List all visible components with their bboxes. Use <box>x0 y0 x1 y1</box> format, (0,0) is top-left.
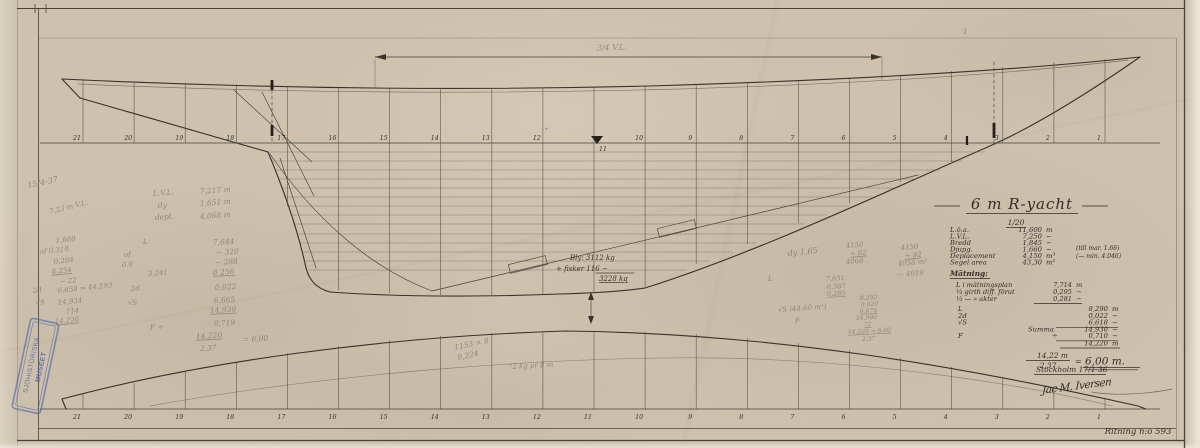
pencil-note: 7,644 <box>213 237 235 247</box>
station-number-top: 16 <box>328 135 336 142</box>
pencil-note: depl. <box>155 212 174 222</box>
keel-section-box <box>657 220 696 238</box>
spec-note: (till mar. 1.66) <box>1076 245 1120 252</box>
station-number-top: 14 <box>431 135 439 142</box>
stem-profile-line <box>645 57 1140 288</box>
station-number-bottom: 1 <box>1097 414 1101 421</box>
pencil-note: 0,022 <box>215 282 237 292</box>
counter-underside <box>80 98 268 152</box>
keel-weight-note-line: 3228 kg <box>599 275 628 283</box>
pencil-note: + <box>544 126 549 133</box>
formula-numerator: 14,22 m <box>1037 351 1068 360</box>
dimension-arrow-left <box>375 54 386 60</box>
pencil-note: 8,254 <box>51 266 72 276</box>
pencil-note: 1,651 m <box>200 197 232 208</box>
station-number-top: 8 <box>739 135 743 142</box>
plan-transom <box>62 399 66 409</box>
transom-edge <box>62 79 80 98</box>
pencil-note: — 4019 <box>896 269 924 279</box>
title-row-value: 43,30 <box>1022 259 1043 267</box>
pencil-note: F <box>794 317 802 325</box>
pencil-note: √S <box>128 298 138 307</box>
station-number-bottom: 10 <box>635 414 643 421</box>
perpendicular-tick <box>271 80 274 90</box>
pencil-note: 2,37 <box>861 335 876 343</box>
pencil-note: 4068 <box>844 256 864 266</box>
spec-note: (— min. 4.046) <box>1076 253 1122 260</box>
matning-heading: Mätning: <box>949 269 988 278</box>
pencil-note: 1,660 <box>55 235 76 245</box>
signature-flourish <box>1092 389 1172 394</box>
pencil-note: − 288 <box>215 257 239 267</box>
station-number-bottom: 5 <box>893 414 897 421</box>
title-block: 6 m R-yacht 1/20 L.ö.a.11,600mL.V.L.7,25… <box>934 195 1172 397</box>
pencil-note: 2d <box>130 284 141 293</box>
pencil-note: 8 256 <box>213 267 235 277</box>
pencil-note: 14,934 <box>57 296 82 307</box>
draft-arrow-head-down <box>588 316 594 324</box>
title-row-unit: m² <box>1046 259 1055 267</box>
counter-diagonal <box>262 92 314 196</box>
place-date: Stockholm 17/1-36 <box>1036 365 1108 374</box>
station-number-bottom: 14 <box>431 414 439 421</box>
title-block-rows: L.ö.a.11,600mL.V.L.7,250−Bredd1,845−Djup… <box>949 226 1140 370</box>
pencil-note: dy <box>158 200 168 210</box>
stamp-border-outer <box>12 318 59 414</box>
station-number-top: 1 <box>1097 135 1101 142</box>
station-number-bottom: 7 <box>790 414 794 421</box>
station-number-top: 11 <box>599 146 607 153</box>
perpendicular-tick <box>271 125 274 136</box>
station-number-top: 13 <box>482 135 490 142</box>
pencil-note: 4,068 m <box>199 210 232 221</box>
pencil-note: 0.0 <box>122 260 134 269</box>
pencil-note: L.V.L. <box>152 188 175 199</box>
station-number-top: 9 <box>688 135 692 142</box>
station-number-top: 19 <box>175 135 183 142</box>
keel-weight-note-line: + fisker 116 − <box>556 265 608 273</box>
pencil-note: 0,285 <box>827 289 846 298</box>
pencil-note: 2,37 <box>199 343 217 353</box>
keel-weight-note: Bly: 3112 kg+ fisker 116 −3228 kg <box>556 254 628 283</box>
keel-section-box <box>508 256 547 274</box>
station-number-bottom: 16 <box>328 414 336 421</box>
pencil-note: 14,220 <box>196 331 223 341</box>
station-number-top: 2 <box>1045 135 1050 142</box>
station-number-bottom: 13 <box>482 414 490 421</box>
station-number-top: 15 <box>380 135 388 142</box>
station-number-top: 12 <box>533 135 541 142</box>
pencil-note: 7,217 m <box>200 185 232 196</box>
pencil-note: 14,939 <box>210 305 237 315</box>
drawing-number: Ritning n:o 593 <box>1104 427 1172 437</box>
station-number-top: 7 <box>790 135 794 142</box>
ballast-seam-line <box>432 175 918 291</box>
pencil-note: √S <box>35 298 45 307</box>
station-number-bottom: 11 <box>584 414 592 421</box>
drawing-sheet: 3/4 V.L. 2121202019191818171716161515141… <box>0 0 1200 448</box>
station-number-bottom: 8 <box>739 414 743 421</box>
pencil-note: 0,284 <box>53 256 74 266</box>
station-number-bottom: 18 <box>226 414 234 421</box>
dimension-arrow-right <box>871 54 882 60</box>
pencil-note: 3,241 <box>148 269 169 278</box>
sheer-line <box>62 57 1140 88</box>
plan-deck-outline <box>62 331 1146 409</box>
pencil-note: = 6,00 <box>243 334 269 344</box>
station-number-top: 5 <box>893 135 897 142</box>
station-number-bottom: 6 <box>841 414 845 421</box>
archive-stamp: SJÖHISTORISKA MUSEET <box>12 318 59 414</box>
pencil-note: L <box>142 238 149 246</box>
pencil-note: F ÷ <box>149 322 164 332</box>
pencil-note: of. <box>124 250 133 259</box>
station-number-bottom: 3 <box>995 414 999 421</box>
station-number-bottom: 12 <box>533 414 541 421</box>
pencil-note: 0,719 <box>214 318 236 328</box>
sum-row-label: √S <box>958 319 967 327</box>
pencil-note: 714 <box>65 307 79 316</box>
station-number-top: 6 <box>841 135 845 142</box>
sum-row-label: F <box>957 332 963 340</box>
lines-plan-svg: 3/4 V.L. 2121202019191818171716161515141… <box>0 0 1200 448</box>
station-number-top: 17 <box>277 135 285 142</box>
station-number-bottom: 21 <box>72 414 81 421</box>
drawing-title: 6 m R-yacht <box>971 195 1073 213</box>
station-number-top: 21 <box>72 135 81 142</box>
pencil-note: dy 1,65 <box>787 246 818 258</box>
sum-row-operator: ÷ <box>1052 332 1058 340</box>
title-row-label: ⅓ — » akter <box>956 295 998 303</box>
pencil-note: of 0,310 <box>39 245 69 256</box>
pencil-note: 4058 m³ <box>896 257 927 268</box>
station-number-top: 4 <box>943 135 948 142</box>
station-number-top: 10 <box>635 135 643 142</box>
pencil-note: 7,23 m V.L. <box>49 199 89 216</box>
station-number-top: 18 <box>226 135 234 142</box>
pencil-note: √S (44,60 m³) <box>778 303 827 314</box>
sternpost-line <box>268 152 330 292</box>
station-number-bottom: 17 <box>277 414 285 421</box>
station-number-top: 20 <box>123 135 132 142</box>
station-number-bottom: 19 <box>175 414 183 421</box>
station-number-bottom: 15 <box>380 414 388 421</box>
pencil-note: 14,220 = 6,00 <box>848 327 892 336</box>
rudder-stock-line <box>280 158 316 268</box>
pencil-note: − 320 <box>216 247 240 257</box>
designer-signature: Jac M. Iversen <box>1040 376 1112 397</box>
perpendicular-tick <box>966 136 968 145</box>
pencil-note: 6,665 <box>214 295 236 305</box>
pencil-calculations: 15/4-377,23 m V.L.L.V.L.7,217 mdy1,651 m… <box>27 126 928 371</box>
keel-bottom-line <box>330 288 645 296</box>
station-number-bottom: 20 <box>123 414 132 421</box>
station-number-bottom: 2 <box>1045 414 1050 421</box>
pencil-note: 15/4-37 <box>27 175 60 190</box>
title-row-unit: − <box>1076 295 1082 303</box>
dimension-label: 3/4 V.L. <box>597 42 627 52</box>
pencil-note: 72 kg pr 8 m <box>508 361 554 371</box>
station-number-bottom: 4 <box>943 414 948 421</box>
plan-waterline-curve <box>150 358 1112 406</box>
title-row-value: 0,281 <box>1053 295 1072 303</box>
title-row-label: Segel area <box>950 259 987 267</box>
sheet-pencil-mark: 1 <box>963 28 967 36</box>
keel-weight-note-line: Bly: 3112 kg <box>569 254 615 262</box>
hull-waterlines <box>269 152 985 270</box>
pencil-note: L <box>767 275 773 283</box>
station-number-top: 3 <box>995 135 999 142</box>
pencil-note: 2d <box>31 286 42 295</box>
sum-row-label: Summa <box>1028 325 1054 333</box>
station-number-bottom: 9 <box>688 414 692 421</box>
